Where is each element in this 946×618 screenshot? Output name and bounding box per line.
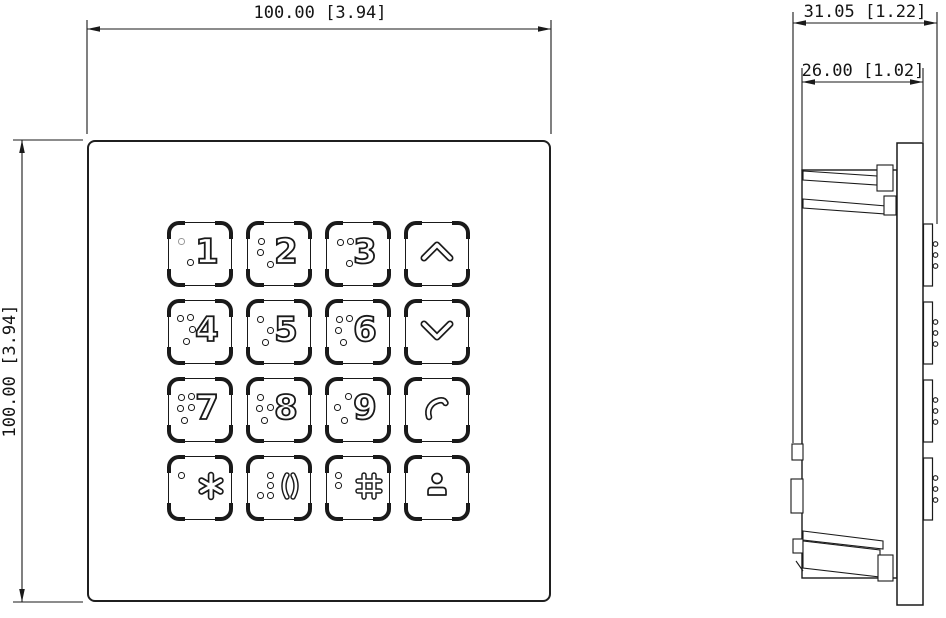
key-9-label: 9 [349, 379, 381, 437]
key-8: 8 [247, 378, 311, 442]
key-corner [325, 503, 343, 521]
braille-dot [334, 404, 341, 411]
side-view-rear-tab [791, 479, 803, 513]
key-corner [167, 347, 185, 365]
braille-dot [181, 417, 188, 424]
braille-dot [177, 315, 184, 322]
braille-dot [341, 417, 348, 424]
braille-dot [257, 394, 264, 401]
key-7: 7 [168, 378, 232, 442]
side-view-rear-tab [792, 444, 803, 460]
front-width-dimension: 100.00 [3.94] [160, 3, 480, 23]
key-5-label: 5 [270, 301, 302, 359]
key-4: 4 [168, 300, 232, 364]
key-corner [325, 221, 343, 239]
key-corner [325, 455, 343, 473]
key-corner [325, 269, 343, 287]
braille-dot [262, 339, 269, 346]
key-2: 2 [247, 222, 311, 286]
key-corner [246, 347, 264, 365]
key-3: 3 [326, 222, 390, 286]
key-6-label: 6 [349, 301, 381, 359]
key-corner [167, 269, 185, 287]
braille-dot [335, 472, 342, 479]
key-4-label: 4 [191, 301, 223, 359]
braille-dot [257, 492, 264, 499]
braille-dot [257, 249, 264, 256]
key-corner [325, 347, 343, 365]
braille-dot [257, 316, 264, 323]
front-height-dimension: 100.00 [3.94] [0, 298, 20, 444]
key-corner [167, 455, 185, 473]
key-corner [246, 269, 264, 287]
key-down [405, 300, 469, 364]
key-corner [325, 425, 343, 443]
side-view-rear-tab [793, 539, 803, 553]
braille-dot [337, 239, 344, 246]
braille-dot [335, 482, 342, 489]
key-corner [167, 377, 185, 395]
key-concierge [405, 456, 469, 520]
key-6: 6 [326, 300, 390, 364]
key-hash [326, 456, 390, 520]
key-corner [246, 425, 264, 443]
key-corner [246, 377, 264, 395]
key-8-label: 8 [270, 379, 302, 437]
braille-dot [261, 417, 268, 424]
key-7-label: 7 [191, 379, 223, 437]
front-panel: 123456789 [87, 140, 551, 602]
key-corner [167, 503, 185, 521]
key-5: 5 [247, 300, 311, 364]
key-call [405, 378, 469, 442]
braille-dot [258, 238, 265, 245]
braille-dot [336, 316, 343, 323]
key-corner [246, 299, 264, 317]
key-star [168, 456, 232, 520]
hash-icon [351, 457, 387, 515]
braille-dot [178, 394, 185, 401]
braille-dot [335, 327, 342, 334]
led-dot [178, 238, 185, 245]
key-1-label: 1 [191, 223, 223, 281]
braille-dot [340, 339, 347, 346]
key-3-label: 3 [349, 223, 381, 281]
side-view-top-clamp-hook [877, 165, 893, 191]
parentheses-icon [272, 457, 308, 515]
braille-dot [256, 405, 263, 412]
braille-dot [183, 338, 190, 345]
key-corner [246, 455, 264, 473]
technical-drawing: 100.00 [3.94] 100.00 [3.94] 31.05 [1.22]… [0, 0, 946, 618]
side-view-key-profiles [924, 224, 933, 520]
key-9: 9 [326, 378, 390, 442]
side-view-housing [802, 170, 897, 578]
arrow-up-icon [417, 223, 457, 281]
key-corner [167, 221, 185, 239]
asterisk-icon [193, 457, 229, 515]
side-mount-depth-dimension: 26.00 [1.02] [788, 61, 938, 81]
key-up [405, 222, 469, 286]
side-view [791, 143, 938, 605]
key-corner [167, 425, 185, 443]
side-view-bottom-clamp-hook [878, 555, 893, 581]
key-corner [325, 377, 343, 395]
side-total-depth-dimension: 31.05 [1.22] [790, 2, 940, 22]
phone-icon [417, 379, 457, 437]
side-view-braille-bumps [933, 242, 938, 503]
key-corner [246, 503, 264, 521]
key-0 [247, 456, 311, 520]
side-view-front-panel [897, 143, 923, 605]
key-corner [167, 299, 185, 317]
key-corner [325, 299, 343, 317]
key-1: 1 [168, 222, 232, 286]
person-icon [417, 457, 457, 515]
key-corner [246, 221, 264, 239]
arrow-down-icon [417, 301, 457, 359]
key-2-label: 2 [270, 223, 302, 281]
braille-dot [178, 472, 185, 479]
side-view-top-clamp-step [884, 196, 896, 215]
braille-dot [177, 405, 184, 412]
